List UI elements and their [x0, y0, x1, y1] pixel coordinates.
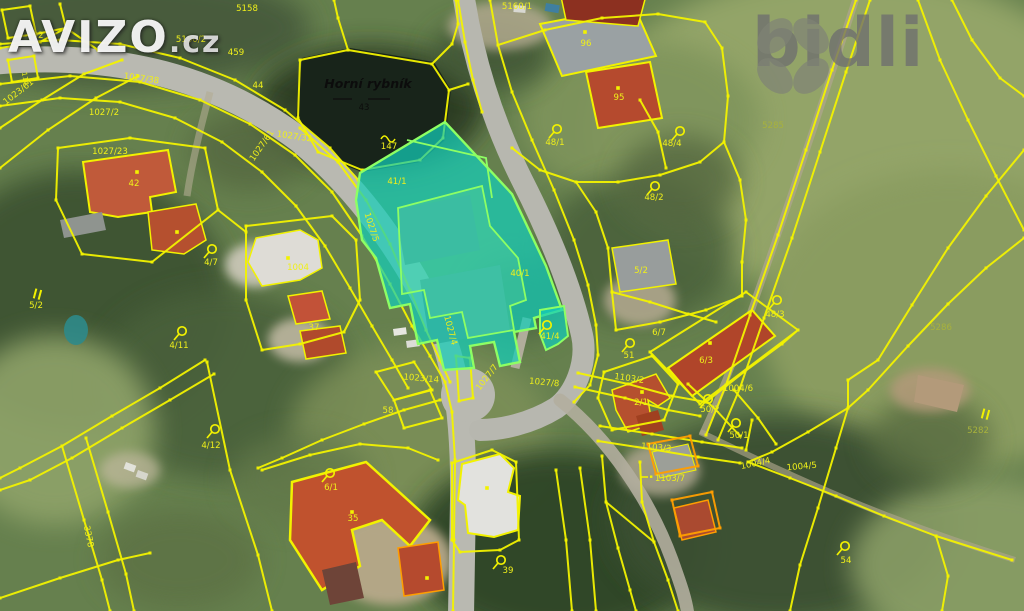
boundary-vertex [985, 267, 988, 270]
boundary-vertex [749, 314, 752, 317]
boundary-vertex [819, 151, 822, 154]
parcel-label: 58 [383, 406, 394, 416]
boundary-vertex [805, 149, 808, 152]
parcel-label: 41/4 [540, 332, 559, 342]
map-canvas: 9251585160/15160/2459441027/381141023/61… [0, 0, 1024, 611]
boundary-vertex [831, 69, 834, 72]
boundary-vertex [589, 539, 592, 542]
parcel-label: 5285 [762, 121, 784, 131]
boundary-vertex [697, 456, 700, 459]
boundary-vertex [179, 57, 182, 60]
boundary-vertex [677, 383, 680, 386]
parcel-label: 5282 [967, 426, 989, 436]
boundary-vertex [59, 97, 62, 100]
boundary-vertex [451, 43, 454, 46]
boundary-vertex [697, 465, 700, 468]
boundary-vertex [159, 387, 162, 390]
boundary-vertex [309, 454, 312, 457]
cadastral-map-viewport[interactable]: 9251585160/15160/2459441027/381141023/61… [0, 0, 1024, 611]
boundary-vertex [206, 361, 209, 364]
boundary-vertex [457, 0, 460, 2]
parcel-label: 42 [129, 179, 140, 189]
boundary-vertex [659, 174, 662, 177]
boundary-vertex [407, 447, 410, 450]
parcel-label: 51 [624, 351, 635, 361]
boundary-vertex [605, 501, 608, 504]
boundary-vertex [491, 449, 494, 452]
boundary-vertex [333, 0, 336, 2]
parcel-boundary-line [218, 210, 246, 232]
boundary-vertex [799, 564, 802, 567]
boundary-vertex [459, 551, 462, 554]
boundary-vertex [169, 399, 172, 402]
parcel-label: 5/2 [634, 266, 648, 276]
boundary-vertex [33, 55, 36, 58]
parcel-label: 41/1 [387, 177, 406, 187]
boundary-vertex [573, 239, 576, 242]
boundary-vertex [363, 423, 366, 426]
boundary-vertex [481, 111, 484, 114]
boundary-vertex [597, 440, 600, 443]
boundary-vertex [407, 387, 410, 390]
building-dot-symbol [708, 341, 712, 345]
boundary-vertex [531, 139, 534, 142]
boundary-vertex [595, 324, 598, 327]
boundary-vertex [55, 199, 58, 202]
boundary-vertex [679, 535, 682, 538]
boundary-vertex [29, 5, 32, 8]
boundary-vertex [723, 141, 726, 144]
boundary-vertex [657, 131, 660, 134]
boundary-vertex [261, 469, 264, 472]
boundary-vertex [294, 154, 297, 157]
boundary-vertex [715, 321, 718, 324]
boundary-vertex [472, 79, 475, 82]
boundary-vertex [611, 429, 614, 432]
boundary-vertex [711, 491, 714, 494]
boundary-vertex [777, 234, 780, 237]
parcel-label: 3378 [81, 525, 95, 548]
boundary-vertex [337, 17, 340, 20]
boundary-vertex [797, 329, 800, 332]
boundary-vertex [261, 171, 264, 174]
boundary-vertex [464, 41, 467, 44]
boundary-vertex [281, 457, 284, 460]
boundary-vertex [657, 13, 660, 16]
boundary-vertex [324, 245, 327, 248]
boundary-vertex [651, 355, 654, 358]
boundary-vertex [413, 361, 416, 364]
boundary-vertex [349, 287, 352, 290]
boundary-vertex [847, 379, 850, 382]
boundary-vertex [869, 0, 872, 2]
parcel-label: 6/3 [699, 356, 713, 366]
boundary-vertex [7, 59, 10, 62]
boundary-vertex [641, 501, 644, 504]
boundary-vertex [245, 299, 248, 302]
parcel-label: 39 [503, 566, 514, 576]
vehicle [393, 327, 407, 336]
boundary-vertex [343, 331, 346, 334]
boundary-vertex [437, 459, 440, 462]
boundary-vertex [589, 384, 592, 387]
boundary-vertex [429, 389, 432, 392]
building-dot-symbol [640, 390, 644, 394]
boundary-vertex [257, 554, 260, 557]
boundary-vertex [497, 44, 500, 47]
parcel-label: 1004 [287, 263, 309, 273]
boundary-vertex [213, 373, 216, 376]
boundary-vertex [97, 49, 100, 52]
boundary-vertex [65, 27, 68, 30]
boundary-vertex [751, 419, 754, 422]
boundary-vertex [603, 371, 606, 374]
boundary-vertex [431, 63, 434, 66]
boundary-vertex [317, 151, 320, 154]
boundary-vertex [257, 467, 260, 470]
boundary-vertex [757, 417, 760, 420]
boundary-vertex [649, 301, 652, 304]
boundary-vertex [19, 467, 22, 470]
parcel-label: 5286 [930, 323, 952, 333]
boundary-vertex [47, 129, 50, 132]
parcel-label: 4/12 [201, 441, 220, 451]
boundary-vertex [951, 0, 954, 2]
boundary-vertex [741, 447, 744, 450]
boundary-vertex [299, 343, 302, 346]
boundary-vertex [331, 191, 334, 194]
boundary-vertex [95, 97, 98, 100]
parcel-label: Horní rybník [324, 76, 412, 91]
boundary-vertex [0, 43, 2, 46]
boundary-vertex [741, 261, 744, 264]
boundary-vertex [59, 3, 62, 6]
vehicle [545, 3, 560, 13]
boundary-vertex [57, 147, 60, 150]
boundary-vertex [329, 147, 332, 150]
boundary-vertex [403, 409, 406, 412]
boundary-vertex [629, 589, 632, 592]
parcel-label: 6/1 [324, 483, 338, 493]
building-dot-symbol [616, 86, 620, 90]
boundary-vertex [59, 577, 62, 580]
parcel-label: 50/2 [700, 405, 719, 415]
parcel-label: 1103/2 [614, 372, 645, 386]
building-roof-white [458, 454, 520, 537]
building-dot-symbol [286, 256, 290, 260]
boundary-vertex [451, 462, 454, 465]
parcel-label: 6/7 [652, 328, 666, 338]
boundary-vertex [597, 354, 600, 357]
boundary-vertex [781, 343, 784, 346]
boundary-vertex [717, 439, 720, 442]
boundary-vertex [234, 79, 237, 82]
parcel-label: 5160/2 [176, 35, 206, 45]
boundary-vertex [229, 469, 232, 472]
terrain-patch [100, 510, 260, 610]
boundary-vertex [375, 371, 378, 374]
boundary-vertex [71, 457, 74, 460]
boundary-vertex [101, 579, 104, 582]
boundary-vertex [971, 39, 974, 42]
building-roof-37a [288, 291, 330, 324]
boundary-vertex [451, 539, 454, 542]
boundary-vertex [499, 549, 502, 552]
boundary-vertex [947, 247, 950, 250]
boundary-vertex [245, 225, 248, 228]
boundary-vertex [119, 101, 122, 104]
boundary-vertex [117, 559, 120, 562]
boundary-vertex [721, 47, 724, 50]
parcel-label: 54 [841, 556, 852, 566]
boundary-vertex [639, 461, 642, 464]
boundary-vertex [699, 161, 702, 164]
boundary-vertex [649, 351, 652, 354]
boundary-vertex [204, 147, 207, 150]
boundary-vertex [617, 547, 620, 550]
boundary-vertex [867, 389, 870, 392]
boundary-vertex [371, 325, 374, 328]
boundary-vertex [451, 411, 454, 414]
building-dot-symbol [583, 30, 587, 34]
boundary-vertex [107, 511, 110, 514]
boundary-vertex [85, 437, 88, 440]
boundary-vertex [719, 527, 722, 530]
parcel-label: 4/11 [169, 341, 188, 351]
boundary-vertex [539, 169, 542, 172]
parcel-label: 44 [253, 81, 264, 91]
boundary-vertex [687, 383, 690, 386]
boundary-vertex [653, 541, 656, 544]
tick-symbol [650, 476, 652, 478]
boundary-vertex [472, 397, 475, 400]
boundary-vertex [403, 427, 406, 430]
boundary-vertex [883, 515, 886, 518]
parcel-label: 48/1 [545, 138, 564, 148]
boundary-vertex [0, 47, 2, 50]
boundary-vertex [29, 479, 32, 482]
boundary-vertex [935, 535, 938, 538]
boundary-vertex [284, 109, 287, 112]
boundary-vertex [444, 381, 447, 384]
boundary-vertex [704, 21, 707, 24]
boundary-vertex [297, 117, 300, 120]
boundary-vertex [727, 95, 730, 98]
boundary-vertex [553, 189, 556, 192]
pool [64, 315, 88, 345]
parcel-label: 1027/8 [529, 377, 560, 390]
boundary-vertex [359, 443, 362, 446]
boundary-vertex [947, 575, 950, 578]
boundary-vertex [659, 321, 662, 324]
boundary-vertex [705, 309, 708, 312]
boundary-vertex [355, 239, 358, 242]
boundary-vertex [615, 329, 618, 332]
boundary-vertex [121, 59, 124, 62]
parcel-label: 37 [309, 323, 320, 333]
boundary-vertex [775, 443, 778, 446]
boundary-vertex [69, 75, 72, 78]
parcel-label: 5158 [236, 4, 258, 14]
boundary-vertex [441, 417, 444, 420]
boundary-vertex [457, 23, 460, 26]
boundary-vertex [555, 469, 558, 472]
boundary-vertex [789, 477, 792, 480]
boundary-vertex [947, 303, 950, 306]
boundary-vertex [911, 304, 914, 307]
parcel-label: 43 [359, 103, 370, 113]
boundary-vertex [83, 73, 86, 76]
boundary-vertex [807, 431, 810, 434]
boundary-vertex [745, 449, 748, 452]
parcel-label: 1103/7 [655, 474, 685, 484]
boundary-vertex [745, 291, 748, 294]
boundary-vertex [607, 247, 610, 250]
boundary-vertex [791, 237, 794, 240]
boundary-vertex [511, 91, 514, 94]
boundary-vertex [665, 167, 668, 170]
boundary-vertex [0, 83, 2, 86]
parcel-label: 1027/23 [92, 147, 128, 157]
boundary-vertex [0, 167, 2, 170]
boundary-vertex [667, 579, 670, 582]
boundary-vertex [663, 419, 666, 422]
parcel-label: 48/2 [644, 193, 663, 203]
boundary-vertex [743, 371, 746, 374]
boundary-vertex [689, 435, 692, 438]
boundary-vertex [639, 99, 642, 102]
boundary-vertex [458, 400, 461, 403]
boundary-vertex [81, 253, 84, 256]
boundary-vertex [0, 489, 2, 492]
boundary-vertex [449, 381, 452, 384]
boundary-vertex [835, 447, 838, 450]
circle-stem-symbol [626, 339, 634, 347]
boundary-vertex [939, 59, 942, 62]
boundary-vertex [0, 127, 2, 130]
building-dot-symbol [135, 170, 139, 174]
boundary-vertex [515, 461, 518, 464]
building-roof-1004 [248, 230, 322, 286]
boundary-vertex [907, 345, 910, 348]
boundary-vertex [7, 37, 10, 40]
boundary-vertex [845, 71, 848, 74]
boundary-vertex [439, 399, 442, 402]
boundary-vertex [855, 0, 858, 2]
boundary-vertex [574, 386, 577, 389]
boundary-vertex [249, 123, 252, 126]
boundary-vertex [489, 0, 492, 2]
boundary-vertex [595, 211, 598, 214]
parcel-label: 5160/1 [502, 2, 532, 12]
boundary-vertex [597, 397, 600, 400]
boundary-vertex [129, 137, 132, 140]
boundary-vertex [565, 539, 568, 542]
boundary-vertex [1011, 559, 1014, 562]
boundary-vertex [745, 219, 748, 222]
boundary-vertex [299, 59, 302, 62]
boundary-vertex [199, 99, 202, 102]
building-dot-symbol [175, 230, 179, 234]
boundary-vertex [111, 415, 114, 418]
boundary-vertex [0, 477, 2, 480]
boundary-vertex [149, 552, 152, 555]
parcel-label: 4/7 [204, 258, 218, 268]
boundary-vertex [771, 451, 774, 454]
boundary-vertex [151, 261, 154, 264]
boundary-vertex [575, 181, 578, 184]
boundary-vertex [359, 299, 362, 302]
parcel-label: 95 [614, 93, 625, 103]
boundary-vertex [467, 83, 470, 86]
boundary-vertex [995, 175, 998, 178]
parcel-label: 50/1 [729, 431, 748, 441]
boundary-vertex [817, 507, 820, 510]
boundary-vertex [573, 401, 576, 404]
boundary-vertex [701, 441, 704, 444]
boundary-vertex [295, 205, 298, 208]
boundary-vertex [739, 179, 742, 182]
boundary-vertex [877, 359, 880, 362]
boundary-vertex [917, 0, 920, 2]
parcel-label: 35 [348, 514, 359, 524]
parcel-boundary-line [334, 0, 348, 50]
boundary-vertex [347, 49, 350, 52]
boundary-vertex [59, 39, 62, 42]
boundary-vertex [448, 89, 451, 92]
parcel-label: 1027/2 [89, 108, 119, 118]
building-dot-symbol [425, 576, 429, 580]
boundary-vertex [985, 195, 988, 198]
parcel-label: 459 [228, 48, 244, 58]
parcel-label: 147 [381, 142, 397, 152]
boundary-vertex [331, 215, 334, 218]
parcel-label: 96 [581, 39, 592, 49]
building-roof-orange-outline [398, 542, 444, 596]
boundary-vertex [121, 427, 124, 430]
boundary-vertex [705, 434, 708, 437]
parcel-label: 1004/6 [723, 384, 753, 394]
boundary-vertex [391, 359, 394, 362]
boundary-vertex [321, 439, 324, 442]
boundary-vertex [83, 519, 86, 522]
parcel-label: 40/1 [510, 269, 529, 279]
parcel-label: 48/4 [662, 139, 681, 149]
boundary-vertex [617, 181, 620, 184]
boundary-vertex [601, 455, 604, 458]
parcel-label: 5/2 [29, 301, 43, 311]
boundary-vertex [511, 147, 514, 150]
boundary-vertex [0, 105, 2, 108]
boundary-vertex [518, 539, 521, 542]
boundary-vertex [601, 17, 604, 20]
boundary-vertex [651, 433, 654, 436]
boundary-vertex [217, 209, 220, 212]
boundary-vertex [0, 597, 2, 600]
boundary-vertex [624, 397, 627, 400]
boundary-vertex [429, 355, 432, 358]
boundary-vertex [999, 77, 1002, 80]
boundary-vertex [174, 117, 177, 120]
boundary-vertex [1, 9, 4, 12]
boundary-vertex [544, 29, 547, 32]
boundary-vertex [611, 291, 614, 294]
parcel-label: 92 [33, 31, 44, 41]
parcel-label: 48/3 [765, 310, 784, 320]
building-dot-symbol [485, 486, 489, 490]
boundary-vertex [671, 499, 674, 502]
boundary-vertex [261, 349, 264, 352]
